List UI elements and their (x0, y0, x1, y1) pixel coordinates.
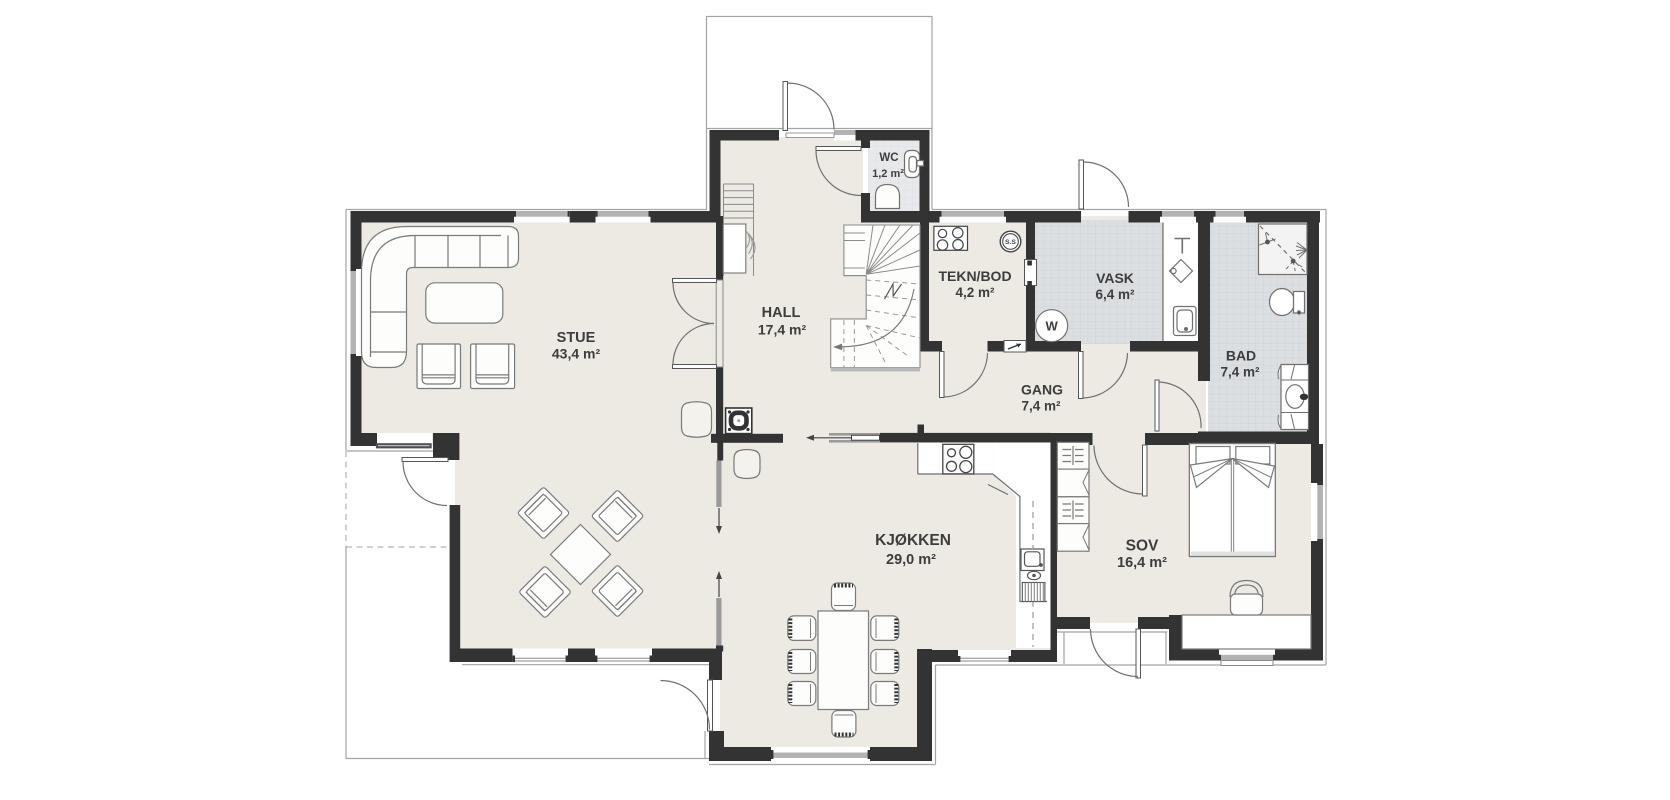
svg-text:TEKN/BOD: TEKN/BOD (938, 268, 1011, 284)
svg-text:SOV: SOV (1126, 538, 1159, 555)
svg-text:4,2 m²: 4,2 m² (955, 285, 995, 300)
svg-text:7,4 m²: 7,4 m² (1021, 399, 1061, 414)
svg-text:7,4 m²: 7,4 m² (1220, 365, 1260, 380)
svg-text:17,4 m²: 17,4 m² (758, 322, 807, 338)
svg-text:BAD: BAD (1226, 348, 1256, 364)
svg-text:6,4 m²: 6,4 m² (1095, 287, 1135, 302)
svg-text:29,0 m²: 29,0 m² (886, 552, 936, 568)
svg-text:43,4 m²: 43,4 m² (552, 346, 601, 362)
svg-text:1,2 m²: 1,2 m² (872, 168, 904, 180)
svg-text:STUE: STUE (557, 330, 596, 346)
svg-text:HALL: HALL (762, 305, 801, 321)
svg-text:W: W (1046, 319, 1059, 334)
svg-text:VASK: VASK (1096, 270, 1134, 286)
svg-text:16,4 m²: 16,4 m² (1117, 555, 1167, 571)
svg-text:WC: WC (879, 152, 898, 164)
svg-text:KJØKKEN: KJØKKEN (875, 532, 951, 549)
svg-text:GANG: GANG (1021, 382, 1063, 398)
svg-text:S.S: S.S (1005, 239, 1016, 246)
